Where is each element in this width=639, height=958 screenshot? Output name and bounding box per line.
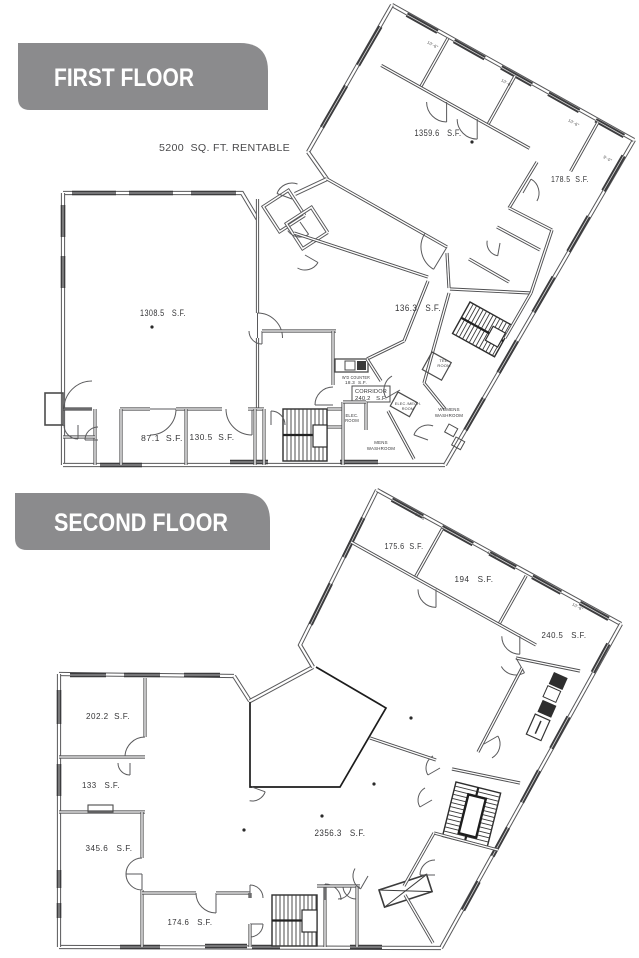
svg-text:9'-0": 9'-0" (602, 154, 613, 163)
svg-text:240.5 S.F.: 240.5 S.F. (542, 630, 587, 640)
svg-text:1359.6 S.F.: 1359.6 S.F. (415, 128, 462, 138)
svg-text:194 S.F.: 194 S.F. (455, 574, 494, 584)
svg-text:WASHROOM: WASHROOM (435, 413, 463, 418)
svg-text:18.3 S.F.: 18.3 S.F. (345, 380, 367, 385)
svg-text:CORRIDOR: CORRIDOR (355, 389, 387, 395)
svg-text:FIRST FLOOR: FIRST FLOOR (54, 64, 194, 92)
svg-text:345.6 S.F.: 345.6 S.F. (86, 843, 133, 853)
svg-text:WASHROOM: WASHROOM (367, 446, 395, 451)
svg-text:136.3 S.F.: 136.3 S.F. (395, 303, 441, 313)
svg-text:133 S.F.: 133 S.F. (82, 780, 120, 790)
svg-text:SECOND FLOOR: SECOND FLOOR (54, 509, 228, 537)
svg-text:130.5 S.F.: 130.5 S.F. (190, 432, 235, 442)
svg-text:10'-6": 10'-6" (567, 118, 580, 128)
svg-text:ROOM: ROOM (345, 418, 359, 423)
svg-text:ELEC./MECH.: ELEC./MECH. (395, 402, 421, 406)
svg-text:87.1 S.F.: 87.1 S.F. (141, 433, 183, 443)
svg-text:175.6 S.F.: 175.6 S.F. (385, 541, 424, 551)
svg-text:10'-6": 10'-6" (486, 550, 499, 560)
svg-text:MENS: MENS (374, 440, 388, 445)
svg-text:10'-6": 10'-6" (414, 512, 427, 522)
svg-text:174.6 S.F.: 174.6 S.F. (168, 917, 213, 927)
svg-text:2356.3 S.F.: 2356.3 S.F. (315, 828, 366, 838)
svg-text:ROOM: ROOM (437, 363, 450, 368)
svg-text:WOMENS: WOMENS (438, 407, 459, 412)
svg-text:202.2 S.F.: 202.2 S.F. (86, 711, 130, 721)
svg-text:ROOM: ROOM (402, 407, 415, 411)
svg-text:178.5 S.F.: 178.5 S.F. (551, 174, 589, 184)
svg-text:10'-6": 10'-6" (426, 40, 439, 50)
svg-text:5200 SQ. FT. RENTABLE: 5200 SQ. FT. RENTABLE (159, 142, 290, 154)
svg-text:1308.5 S.F.: 1308.5 S.F. (140, 308, 186, 318)
